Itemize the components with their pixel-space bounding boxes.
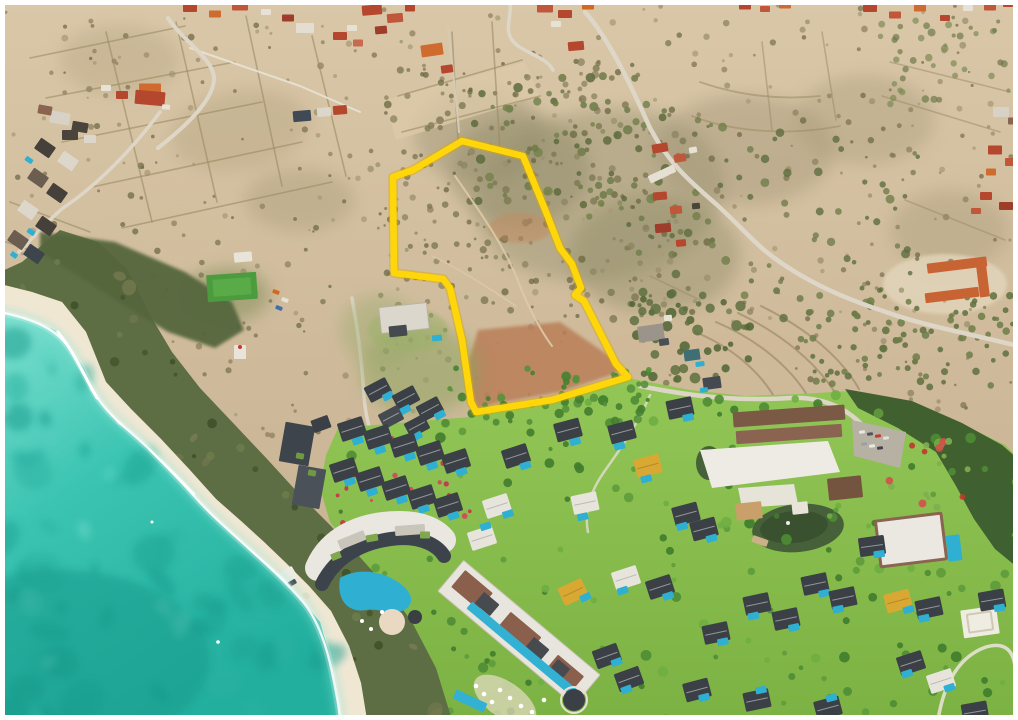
- dot: [829, 380, 836, 387]
- dot: [478, 90, 485, 97]
- dot: [819, 359, 824, 364]
- dot: [816, 324, 822, 330]
- dot: [255, 29, 259, 33]
- dot: [598, 200, 605, 207]
- dot: [895, 337, 901, 343]
- dot: [468, 88, 472, 92]
- dot: [514, 104, 516, 106]
- dot: [488, 660, 495, 667]
- dot: [782, 651, 787, 656]
- dot: [574, 462, 582, 470]
- dot: [630, 396, 639, 405]
- dot: [838, 146, 844, 152]
- dot: [123, 162, 126, 165]
- dot: [641, 381, 649, 389]
- dot: [561, 198, 568, 205]
- dot: [188, 105, 194, 111]
- dot: [977, 184, 981, 188]
- dot: [225, 367, 231, 373]
- dot: [877, 288, 882, 293]
- dot: [531, 306, 534, 309]
- dot: [585, 138, 592, 145]
- dot: [669, 233, 675, 239]
- dot: [660, 252, 664, 256]
- dot: [328, 174, 331, 177]
- dot: [670, 365, 680, 375]
- dot: [805, 316, 810, 321]
- dot: [215, 240, 221, 246]
- village-house-15: [209, 11, 221, 18]
- dot: [692, 212, 700, 220]
- dot: [400, 40, 403, 43]
- dot: [861, 26, 868, 33]
- dot: [383, 224, 385, 226]
- dot: [641, 650, 652, 661]
- dot: [663, 297, 667, 301]
- dot: [677, 32, 683, 38]
- dot: [313, 225, 319, 231]
- dot: [558, 74, 566, 82]
- hotel-roof-garden-2: [420, 532, 430, 539]
- dot: [496, 48, 501, 53]
- dot: [778, 279, 783, 284]
- dot: [969, 26, 973, 30]
- dot: [588, 187, 594, 193]
- dot: [444, 187, 449, 192]
- dot: [117, 122, 121, 126]
- dot: [791, 145, 793, 147]
- dot: [253, 22, 259, 28]
- dot: [922, 95, 929, 102]
- dot: [201, 80, 205, 84]
- village-house-8: [676, 239, 687, 247]
- village-house-26: [317, 107, 332, 117]
- dot: [151, 135, 155, 139]
- dot: [268, 46, 271, 49]
- dot: [717, 412, 722, 417]
- dot: [795, 367, 798, 370]
- dot: [691, 62, 697, 68]
- dot: [591, 597, 597, 603]
- dot: [892, 81, 898, 87]
- dot: [461, 162, 468, 169]
- dot: [779, 314, 788, 323]
- dot: [901, 178, 904, 181]
- dot: [510, 120, 514, 124]
- dot: [573, 124, 578, 129]
- village-house-5: [347, 25, 357, 31]
- dot: [962, 18, 968, 24]
- dot: [908, 107, 913, 112]
- dot: [617, 122, 623, 128]
- dot: [709, 242, 716, 249]
- dot: [937, 347, 943, 353]
- dot: [437, 125, 442, 130]
- dot: [503, 478, 512, 487]
- dot: [856, 359, 860, 363]
- dot: [655, 267, 661, 273]
- dot: [973, 31, 978, 36]
- dot: [676, 303, 681, 308]
- dot: [493, 419, 500, 426]
- dot: [671, 577, 676, 582]
- dot: [605, 108, 611, 114]
- dot: [590, 122, 595, 127]
- dot: [370, 499, 373, 502]
- dot: [88, 19, 93, 24]
- dot: [792, 110, 798, 116]
- dot: [580, 201, 587, 208]
- dot: [938, 643, 947, 652]
- dot: [741, 291, 749, 299]
- dot: [590, 394, 598, 402]
- dot: [569, 303, 573, 307]
- dot: [972, 368, 980, 376]
- dot: [93, 61, 97, 65]
- dot: [1008, 238, 1011, 241]
- mansion-wing: [388, 325, 407, 338]
- dot: [690, 373, 701, 384]
- dot: [868, 193, 872, 197]
- dot: [342, 372, 348, 378]
- dot: [724, 83, 730, 89]
- dot: [632, 276, 637, 281]
- dot: [854, 312, 861, 319]
- dot: [951, 16, 955, 20]
- village-house-8: [441, 64, 454, 74]
- dot: [447, 182, 450, 185]
- dot: [577, 171, 582, 176]
- dot: [827, 310, 835, 318]
- dot: [631, 293, 639, 301]
- dot: [507, 307, 514, 314]
- dot: [827, 93, 832, 98]
- dot: [561, 371, 571, 381]
- dot: [951, 60, 957, 66]
- dot: [991, 358, 996, 363]
- dot: [957, 51, 960, 54]
- dot: [852, 326, 858, 332]
- dot: [749, 278, 754, 283]
- dot: [640, 279, 643, 282]
- dot: [826, 547, 832, 553]
- dot: [820, 269, 824, 273]
- dot: [812, 158, 819, 165]
- dot: [828, 369, 834, 375]
- dot: [900, 75, 906, 81]
- dot: [607, 289, 614, 296]
- dot: [721, 256, 730, 265]
- dot: [468, 509, 472, 513]
- dot: [89, 57, 92, 60]
- village-house-34: [940, 15, 950, 21]
- village-house-12: [986, 169, 996, 176]
- village-house-9: [692, 203, 700, 210]
- dot: [827, 513, 833, 519]
- dot: [918, 35, 925, 42]
- dot: [646, 299, 653, 306]
- dot: [643, 190, 648, 195]
- dot: [630, 316, 639, 325]
- dot: [409, 194, 415, 200]
- dot: [557, 547, 563, 553]
- dot: [776, 128, 785, 137]
- dot: [668, 251, 676, 259]
- village-house-1: [387, 13, 404, 23]
- dot: [528, 88, 534, 94]
- dot: [447, 386, 452, 391]
- dot: [293, 409, 296, 412]
- dot: [902, 66, 908, 72]
- dot: [718, 123, 727, 132]
- dot: [881, 126, 886, 131]
- dot: [813, 369, 817, 373]
- dot: [577, 87, 582, 92]
- dot: [603, 402, 607, 406]
- dot: [377, 227, 380, 230]
- dot: [120, 295, 125, 300]
- dot: [877, 372, 882, 377]
- village-house-10: [988, 146, 1002, 155]
- dot: [629, 287, 634, 292]
- dot: [526, 428, 534, 436]
- dot: [968, 71, 970, 73]
- dot: [857, 47, 861, 51]
- dot: [562, 405, 570, 413]
- dot: [468, 94, 471, 97]
- dot: [946, 362, 950, 366]
- dot: [361, 216, 367, 222]
- dot: [882, 326, 890, 334]
- dot: [966, 351, 973, 358]
- dot: [773, 287, 780, 294]
- dot: [589, 174, 596, 181]
- village-house-17: [971, 208, 981, 214]
- dot: [487, 183, 493, 189]
- dot: [316, 133, 321, 138]
- dot: [873, 218, 880, 225]
- dot: [484, 239, 491, 246]
- dot: [761, 155, 769, 163]
- dot: [672, 270, 681, 279]
- dot: [912, 353, 920, 361]
- dot: [783, 169, 791, 177]
- dot: [897, 49, 902, 54]
- cliff-villa-11: [134, 90, 165, 107]
- dot: [408, 44, 413, 49]
- dot: [708, 155, 714, 161]
- dot: [943, 43, 947, 47]
- dot: [984, 344, 989, 349]
- dot: [154, 248, 161, 255]
- village-house-5: [653, 191, 668, 200]
- dot: [70, 301, 78, 309]
- dot: [579, 95, 587, 103]
- dot: [213, 46, 218, 51]
- dot: [868, 137, 874, 143]
- dot: [800, 117, 807, 124]
- dot: [222, 213, 228, 219]
- dot: [923, 491, 929, 497]
- dot: [755, 154, 760, 159]
- dot: [453, 211, 459, 217]
- dot: [1003, 307, 1009, 313]
- dot: [673, 219, 678, 224]
- dot: [835, 574, 842, 581]
- village-house-18: [282, 15, 294, 22]
- dot: [912, 151, 917, 156]
- dot: [856, 557, 865, 566]
- dot: [49, 71, 54, 76]
- village-house-24: [84, 135, 96, 143]
- dot: [424, 243, 429, 248]
- dot: [397, 67, 404, 74]
- dot: [541, 156, 545, 160]
- dot: [561, 384, 566, 389]
- dot: [600, 191, 608, 199]
- village-house-31: [863, 4, 877, 12]
- dot: [431, 242, 438, 249]
- dot: [957, 33, 964, 40]
- dot: [261, 427, 265, 431]
- dot: [414, 231, 417, 234]
- dot: [543, 187, 552, 196]
- dot: [930, 492, 936, 498]
- dot: [897, 642, 903, 648]
- dot: [934, 218, 937, 221]
- dot: [488, 155, 490, 157]
- dot: [919, 500, 927, 508]
- dot: [354, 49, 357, 52]
- dot: [423, 68, 426, 71]
- dot: [409, 30, 415, 36]
- dot: [939, 171, 942, 174]
- dot: [530, 371, 535, 376]
- dot: [176, 154, 179, 157]
- dot: [800, 27, 806, 33]
- dot: [453, 365, 459, 371]
- dot: [703, 34, 709, 40]
- dot: [723, 346, 728, 351]
- dot: [751, 267, 757, 273]
- dot: [54, 259, 60, 265]
- dot: [791, 395, 799, 403]
- dot: [547, 273, 551, 277]
- dot: [228, 359, 232, 363]
- dot: [88, 124, 94, 130]
- dot: [637, 260, 643, 266]
- dot: [960, 402, 966, 408]
- dot: [432, 220, 436, 224]
- dot: [866, 524, 871, 529]
- dot: [684, 229, 693, 238]
- dot: [581, 81, 587, 87]
- dot: [987, 382, 994, 389]
- dot: [948, 468, 956, 476]
- dot: [729, 53, 733, 57]
- dot: [650, 304, 661, 315]
- dot: [648, 234, 652, 238]
- dot: [128, 192, 135, 199]
- dot: [183, 17, 185, 19]
- dot: [412, 154, 417, 159]
- dot: [563, 214, 569, 220]
- dot: [663, 501, 669, 507]
- dot: [609, 171, 615, 177]
- dot: [291, 404, 294, 407]
- dot: [652, 153, 657, 158]
- deck-umbrella-6: [542, 698, 547, 703]
- dot: [525, 679, 532, 686]
- dot: [865, 156, 868, 159]
- dot: [260, 204, 266, 210]
- dot: [840, 172, 843, 175]
- dot: [774, 513, 780, 519]
- dot: [574, 143, 579, 148]
- dot: [889, 152, 894, 157]
- dot: [476, 154, 485, 163]
- dot: [732, 204, 737, 209]
- dot: [720, 299, 726, 305]
- dot: [788, 673, 795, 680]
- dot: [303, 330, 305, 332]
- dot: [451, 646, 456, 651]
- dot: [488, 13, 493, 18]
- dot: [748, 568, 755, 575]
- village-house-13: [568, 41, 585, 51]
- dot: [909, 443, 915, 449]
- dot: [870, 242, 874, 246]
- dot: [845, 373, 852, 380]
- dot: [945, 21, 952, 28]
- dot: [947, 317, 954, 324]
- dot: [196, 58, 201, 63]
- dot: [459, 102, 466, 109]
- dot: [844, 255, 851, 262]
- village-house-14: [183, 4, 197, 12]
- dot: [881, 338, 887, 344]
- dot: [624, 107, 630, 113]
- dot: [513, 83, 522, 92]
- dot: [717, 182, 723, 188]
- dot: [125, 85, 130, 90]
- dot: [466, 243, 471, 248]
- dot: [883, 188, 890, 195]
- dot: [906, 299, 912, 305]
- dot: [497, 394, 505, 402]
- dot: [328, 152, 333, 157]
- dot: [462, 89, 465, 92]
- dot: [907, 390, 914, 397]
- village-house-33: [914, 5, 926, 12]
- deck-umbrella-4: [490, 700, 495, 705]
- dot: [878, 34, 883, 39]
- dot: [449, 94, 454, 99]
- dot: [524, 365, 530, 371]
- pond-swan: [786, 521, 790, 525]
- dot: [600, 129, 605, 134]
- round-pool-bar: [563, 689, 585, 711]
- dot: [605, 99, 611, 105]
- dot: [965, 433, 975, 443]
- dot: [612, 484, 620, 492]
- dot: [246, 326, 251, 331]
- dot: [906, 146, 912, 152]
- dot: [554, 188, 562, 196]
- dot: [441, 419, 450, 428]
- dot: [737, 132, 742, 137]
- dot: [679, 138, 686, 145]
